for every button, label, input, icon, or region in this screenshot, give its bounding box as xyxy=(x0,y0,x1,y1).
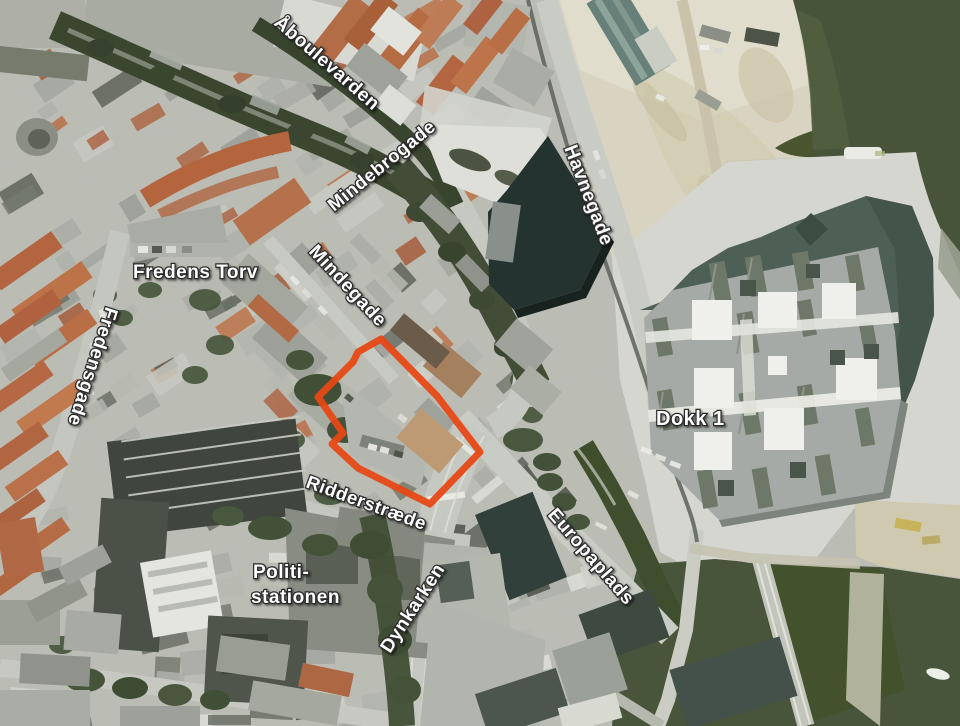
svg-text:Fredens Torv: Fredens Torv xyxy=(133,262,258,283)
svg-text:stationen: stationen xyxy=(251,587,340,608)
svg-text:Dokk 1: Dokk 1 xyxy=(656,408,725,430)
svg-text:Politi-: Politi- xyxy=(253,562,309,583)
